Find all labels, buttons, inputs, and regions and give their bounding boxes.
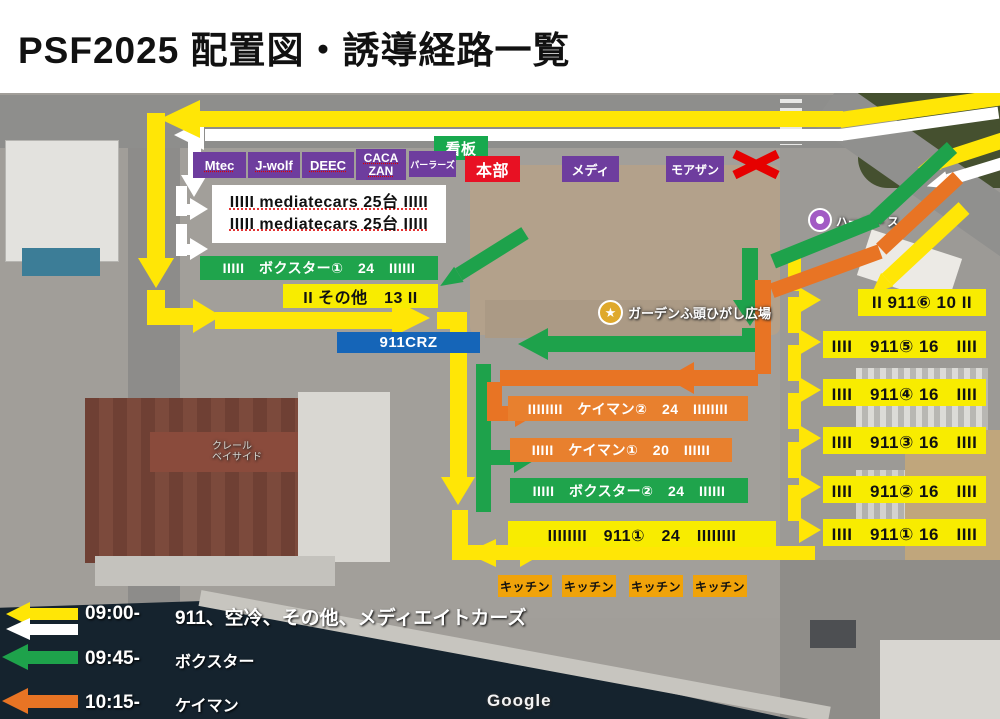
zone-bar-cayman1: IIIII ケイマン① 20 IIIIII — [510, 438, 732, 462]
kitchen-label: キッチン — [500, 578, 550, 595]
garden-poi-label: ガーデンふ頭ひがし広場 — [628, 303, 771, 322]
green-route-segment — [548, 336, 730, 352]
kitchen-label: キッチン — [564, 578, 614, 595]
orange-route-arrowhead — [666, 362, 694, 394]
green-route-arrowhead — [518, 328, 548, 360]
booth-moazan: モアザン — [666, 156, 724, 182]
yellow-route-arrowhead — [160, 100, 200, 138]
booth-cacazan-label: CACA ZAN — [356, 152, 406, 177]
harbor-map-pin-icon — [808, 208, 832, 232]
yellow-feeder-segment — [788, 442, 801, 478]
yellow-feeder-segment — [788, 345, 801, 381]
zone-bar-sonota-label: II その他 13 II — [303, 284, 417, 308]
yellow-feeder-segment — [788, 297, 801, 333]
zone-bar-911-1-center: IIIIIIII 911① 24 IIIIIIII — [508, 521, 776, 547]
yellow-route-segment — [147, 113, 165, 261]
building-name-label: クレール ベイサイド — [212, 441, 262, 463]
booth-parlors-label: パーラーズ — [410, 158, 455, 171]
sign-hq-label: 本部 — [476, 157, 509, 181]
zone-bar-911-2-label: IIII 911② 16 IIII — [832, 477, 978, 502]
booth-mtec: Mtec — [193, 152, 246, 178]
pool — [22, 248, 100, 276]
containers — [810, 620, 856, 648]
booth-jwolf: J-wolf — [248, 152, 300, 178]
yellow-feeder-arrowhead — [799, 287, 821, 313]
orange-route-segment — [755, 280, 771, 374]
legend-arrow-green — [26, 651, 78, 664]
zone-bar-911-4: IIII 911④ 16 IIII — [823, 379, 986, 406]
page-title: PSF2025 配置図・誘導経路一覧 — [18, 20, 571, 74]
yellow-route-segment — [494, 546, 815, 560]
zone-bar-911-3: IIII 911③ 16 IIII — [823, 427, 986, 454]
yellow-feeder-arrowhead — [799, 474, 821, 500]
legend-arrow-green-head — [2, 644, 28, 670]
orange-route-segment — [500, 370, 758, 386]
booth-deec-label: DEEC — [310, 158, 346, 173]
yellow-feeder-arrowhead — [799, 517, 821, 543]
building-white-left — [5, 140, 119, 262]
legend-time-2: 09:45- — [85, 648, 140, 670]
white-route-arrowhead — [190, 198, 208, 220]
zone-bar-cayman1-label: IIIII ケイマン① 20 IIIIII — [532, 440, 710, 460]
building-name-line2: ベイサイド — [212, 452, 262, 463]
yellow-feeder-arrowhead — [799, 377, 821, 403]
slide-header: PSF2025 配置図・誘導経路一覧 — [0, 0, 1000, 93]
wharf-strip — [95, 556, 335, 586]
yellow-route-segment — [200, 111, 843, 127]
zone-bar-911-1-center-label: IIIIIIII 911① 24 IIIIIIII — [548, 522, 737, 546]
yellow-feeder-arrowhead — [799, 425, 821, 451]
yellow-feeder-arrowhead — [799, 329, 821, 355]
zone-bar-911-5-label: IIII 911⑤ 16 IIII — [832, 332, 978, 357]
zone-bar-911-6: II 911⑥ 10 II — [858, 289, 986, 316]
booth-medi-label: メディ — [571, 160, 609, 179]
kitchen-box: キッチン — [562, 575, 616, 597]
zone-bar-911-6-label: II 911⑥ 10 II — [872, 293, 972, 313]
map-watermark: Google — [487, 691, 552, 711]
slide: PSF2025 配置図・誘導経路一覧 — [0, 0, 1000, 719]
building-bottom-right — [880, 640, 1000, 719]
zone-bar-911-1-right: IIII 911① 16 IIII — [823, 519, 986, 546]
zone-bar-911-2: IIII 911② 16 IIII — [823, 476, 986, 503]
booth-jwolf-label: J-wolf — [255, 158, 293, 173]
zone-bar-cayman2: IIIIIIII ケイマン② 24 IIIIIIII — [508, 396, 748, 421]
zone-bar-boxster2: IIIII ボクスター② 24 IIIIII — [510, 478, 748, 503]
aerial-map: 看板 Mtec J-wolf DEEC CACA ZAN パーラーズ 本部 メデ… — [0, 93, 1000, 719]
kitchen-box: キッチン — [629, 575, 683, 597]
kitchen-box: キッチン — [498, 575, 552, 597]
zone-bar-sonota: II その他 13 II — [283, 284, 438, 308]
zone-bar-911-4-label: IIII 911④ 16 IIII — [832, 380, 978, 405]
yellow-feeder-segment — [788, 393, 801, 429]
white-route-segment — [205, 129, 843, 141]
zone-bar-911crz: 911CRZ — [337, 332, 480, 353]
zone-bar-boxster1: IIIII ボクスター① 24 IIIIII — [200, 256, 438, 280]
legend-label-1: 911、空冷、その他、メディエイトカーズ — [175, 603, 526, 630]
zone-bar-911-1-right-label: IIII 911① 16 IIII — [832, 520, 978, 545]
booth-cacazan: CACA ZAN — [356, 149, 406, 180]
zone-mediatecars-line1: IIIII mediatecars 25台 IIIII — [230, 192, 428, 214]
zone-bar-911-3-label: IIII 911③ 16 IIII — [832, 428, 978, 453]
yellow-feeder-segment — [788, 485, 801, 521]
sign-hq: 本部 — [465, 156, 520, 182]
legend-label-2: ボクスター — [175, 648, 255, 672]
zone-bar-boxster2-label: IIIII ボクスター② 24 IIIIII — [533, 481, 726, 501]
yellow-route-segment — [147, 308, 195, 325]
green-route-segment — [726, 336, 758, 352]
kitchen-label: キッチン — [631, 578, 681, 595]
booth-deec: DEEC — [302, 152, 354, 178]
zone-bar-911-5: IIII 911⑤ 16 IIII — [823, 331, 986, 358]
legend-arrow-yellow — [28, 608, 78, 620]
yellow-route-segment — [215, 312, 395, 329]
zone-mediatecars: IIIII mediatecars 25台 IIIII IIIII mediat… — [212, 185, 446, 243]
zone-bar-cayman2-label: IIIIIIII ケイマン② 24 IIIIIIII — [528, 399, 728, 419]
booth-moazan-label: モアザン — [671, 161, 719, 178]
legend-arrow-white-head — [6, 618, 30, 640]
legend-arrow-orange-head — [2, 688, 28, 714]
kitchen-label: キッチン — [695, 578, 745, 595]
zone-bar-911crz-label: 911CRZ — [379, 334, 437, 351]
booth-parlors: パーラーズ — [409, 151, 456, 177]
legend-arrow-orange — [26, 695, 78, 708]
legend-arrow-white — [28, 624, 78, 635]
zone-bar-boxster1-label: IIIII ボクスター① 24 IIIIII — [223, 258, 416, 278]
building-white-mid — [298, 392, 390, 562]
yellow-route-arrowhead — [138, 258, 174, 288]
booth-mtec-label: Mtec — [205, 158, 235, 173]
harbor-map-pin-dot — [816, 216, 824, 224]
legend-time-3: 10:15- — [85, 692, 140, 714]
booth-medi: メディ — [562, 156, 619, 182]
legend-time-1: 09:00- — [85, 603, 140, 625]
kitchen-box: キッチン — [693, 575, 747, 597]
yellow-route-arrowhead — [441, 477, 475, 505]
zone-mediatecars-line2: IIIII mediatecars 25台 IIIII — [230, 214, 428, 236]
yellow-route-arrowhead — [466, 539, 496, 567]
building-name-line1: クレール — [212, 441, 262, 452]
garden-star-icon: ★ — [598, 300, 623, 325]
legend-label-3: ケイマン — [175, 692, 239, 716]
